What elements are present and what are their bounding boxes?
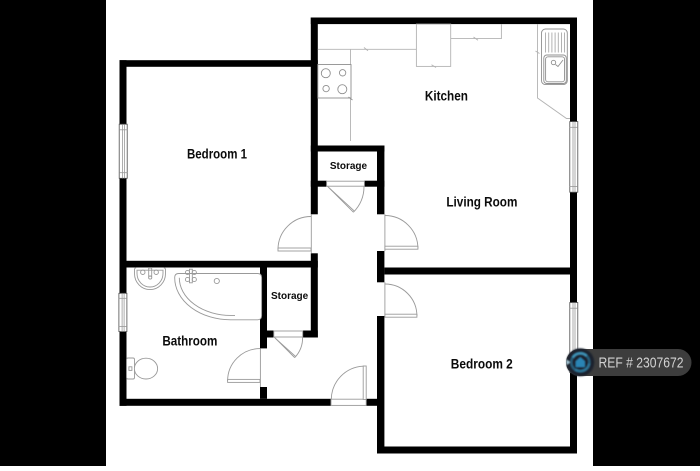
svg-text:Kitchen: Kitchen bbox=[425, 89, 468, 104]
svg-text:Living Room: Living Room bbox=[446, 195, 517, 210]
svg-text:Storage: Storage bbox=[330, 161, 368, 172]
svg-text:Bedroom 2: Bedroom 2 bbox=[451, 357, 513, 372]
svg-text:Bathroom: Bathroom bbox=[162, 334, 217, 349]
svg-text:Bedroom 1: Bedroom 1 bbox=[187, 146, 247, 161]
svg-text:REF # 2307672: REF # 2307672 bbox=[599, 356, 684, 372]
svg-text:Storage: Storage bbox=[271, 291, 309, 302]
